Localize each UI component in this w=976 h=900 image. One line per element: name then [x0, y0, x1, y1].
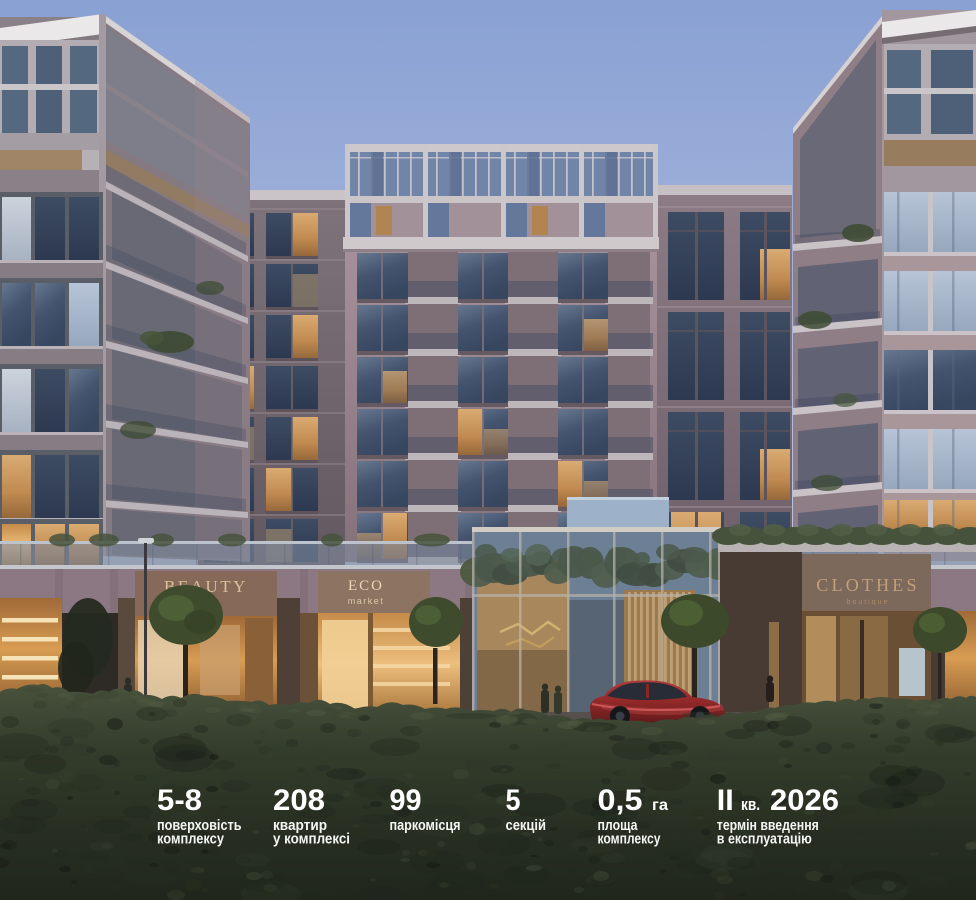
svg-text:у комплексі: у комплексі — [273, 830, 350, 847]
svg-text:0,5: 0,5 — [598, 784, 643, 817]
svg-text:market: market — [348, 596, 385, 606]
svg-text:секцій: секцій — [506, 817, 547, 834]
svg-text:2026: 2026 — [770, 784, 839, 817]
svg-text:boutique: boutique — [847, 599, 890, 606]
svg-text:комплексу: комплексу — [157, 830, 224, 847]
svg-text:комплексу: комплексу — [598, 830, 661, 847]
svg-text:в експлуатацію: в експлуатацію — [717, 830, 812, 847]
svg-text:CLOTHES: CLOTHES — [816, 575, 919, 595]
svg-text:кв.: кв. — [741, 795, 760, 814]
svg-text:II: II — [717, 784, 734, 817]
svg-text:паркомісця: паркомісця — [390, 817, 461, 834]
svg-text:208: 208 — [273, 784, 325, 817]
svg-text:99: 99 — [390, 784, 422, 817]
svg-text:5-8: 5-8 — [157, 784, 202, 817]
svg-text:га: га — [652, 797, 668, 814]
svg-text:5: 5 — [506, 784, 521, 817]
svg-text:ECO: ECO — [348, 578, 384, 594]
